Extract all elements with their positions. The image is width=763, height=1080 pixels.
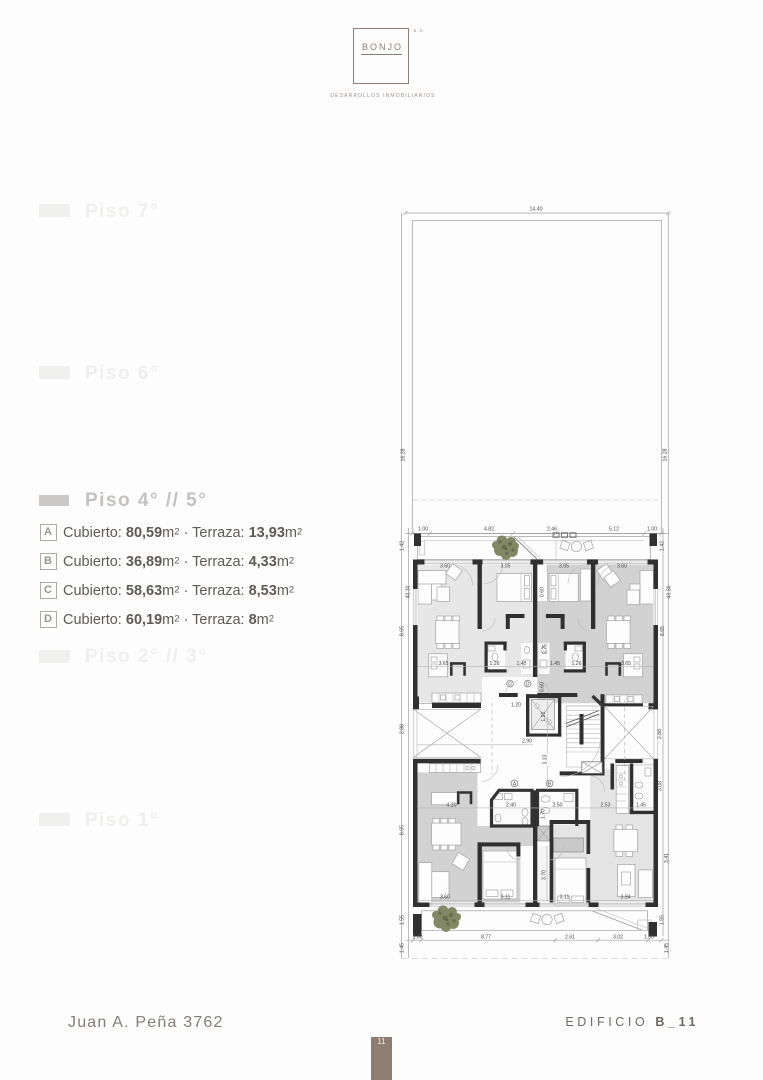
svg-text:1.45: 1.45 bbox=[400, 943, 406, 953]
svg-text:2.88: 2.88 bbox=[657, 729, 663, 739]
svg-text:0.60: 0.60 bbox=[540, 587, 546, 597]
svg-text:A: A bbox=[513, 781, 517, 787]
svg-text:3.65: 3.65 bbox=[621, 661, 631, 667]
svg-text:1.42: 1.42 bbox=[400, 541, 406, 551]
svg-text:14.40: 14.40 bbox=[530, 207, 543, 213]
svg-text:3.94: 3.94 bbox=[620, 895, 630, 901]
svg-text:1.45: 1.45 bbox=[636, 802, 646, 808]
svg-text:2.61: 2.61 bbox=[565, 935, 575, 941]
svg-text:8.77: 8.77 bbox=[481, 935, 491, 941]
svg-text:2.88: 2.88 bbox=[400, 724, 406, 734]
svg-text:D: D bbox=[526, 682, 530, 688]
svg-text:1.55: 1.55 bbox=[400, 915, 406, 925]
svg-text:1.26: 1.26 bbox=[489, 661, 499, 667]
svg-text:3.65: 3.65 bbox=[438, 661, 448, 667]
svg-text:1.55: 1.55 bbox=[660, 915, 666, 925]
svg-text:B: B bbox=[548, 781, 552, 787]
svg-text:2.40: 2.40 bbox=[506, 802, 516, 808]
svg-text:3.70: 3.70 bbox=[542, 870, 548, 880]
svg-text:5.12: 5.12 bbox=[609, 527, 619, 533]
svg-text:8.65: 8.65 bbox=[400, 626, 406, 636]
svg-text:2.75: 2.75 bbox=[543, 644, 549, 654]
svg-text:43.30: 43.30 bbox=[406, 585, 412, 598]
svg-text:C: C bbox=[508, 682, 512, 688]
svg-text:2.50: 2.50 bbox=[552, 802, 562, 808]
svg-text:3.60: 3.60 bbox=[440, 564, 450, 570]
svg-text:2.53: 2.53 bbox=[600, 802, 610, 808]
svg-text:1.45: 1.45 bbox=[664, 943, 670, 953]
svg-text:8.65: 8.65 bbox=[660, 626, 666, 636]
svg-text:4.20: 4.20 bbox=[446, 802, 456, 808]
svg-text:3.08: 3.08 bbox=[658, 781, 664, 791]
svg-text:43.30: 43.30 bbox=[667, 585, 673, 598]
svg-text:8.65: 8.65 bbox=[400, 825, 406, 835]
svg-text:1.26: 1.26 bbox=[571, 661, 581, 667]
svg-text:16.28: 16.28 bbox=[663, 448, 669, 461]
svg-text:0.60: 0.60 bbox=[540, 682, 546, 692]
svg-text:1.45: 1.45 bbox=[550, 661, 560, 667]
svg-text:3.33: 3.33 bbox=[542, 754, 548, 764]
svg-text:1.00: 1.00 bbox=[412, 935, 422, 941]
svg-text:3.60: 3.60 bbox=[617, 564, 627, 570]
svg-text:3.05: 3.05 bbox=[500, 564, 510, 570]
svg-text:2.46: 2.46 bbox=[547, 527, 557, 533]
svg-text:1.00: 1.00 bbox=[647, 527, 657, 533]
svg-text:3.11: 3.11 bbox=[501, 895, 511, 901]
svg-text:1.00: 1.00 bbox=[418, 527, 428, 533]
svg-text:1.20: 1.20 bbox=[511, 703, 521, 709]
svg-text:1.00: 1.00 bbox=[644, 935, 654, 941]
svg-text:1.70: 1.70 bbox=[541, 809, 547, 819]
svg-text:1.92: 1.92 bbox=[541, 711, 547, 721]
svg-text:3.60: 3.60 bbox=[440, 895, 450, 901]
svg-text:3.41: 3.41 bbox=[664, 853, 670, 863]
svg-text:3.05: 3.05 bbox=[559, 564, 569, 570]
svg-text:16.28: 16.28 bbox=[401, 448, 407, 461]
svg-text:1.45: 1.45 bbox=[516, 661, 526, 667]
svg-text:2.90: 2.90 bbox=[522, 739, 532, 745]
svg-text:3.02: 3.02 bbox=[613, 935, 623, 941]
svg-text:3.11: 3.11 bbox=[560, 895, 570, 901]
svg-text:4.82: 4.82 bbox=[484, 527, 494, 533]
svg-text:1.42: 1.42 bbox=[660, 541, 666, 551]
